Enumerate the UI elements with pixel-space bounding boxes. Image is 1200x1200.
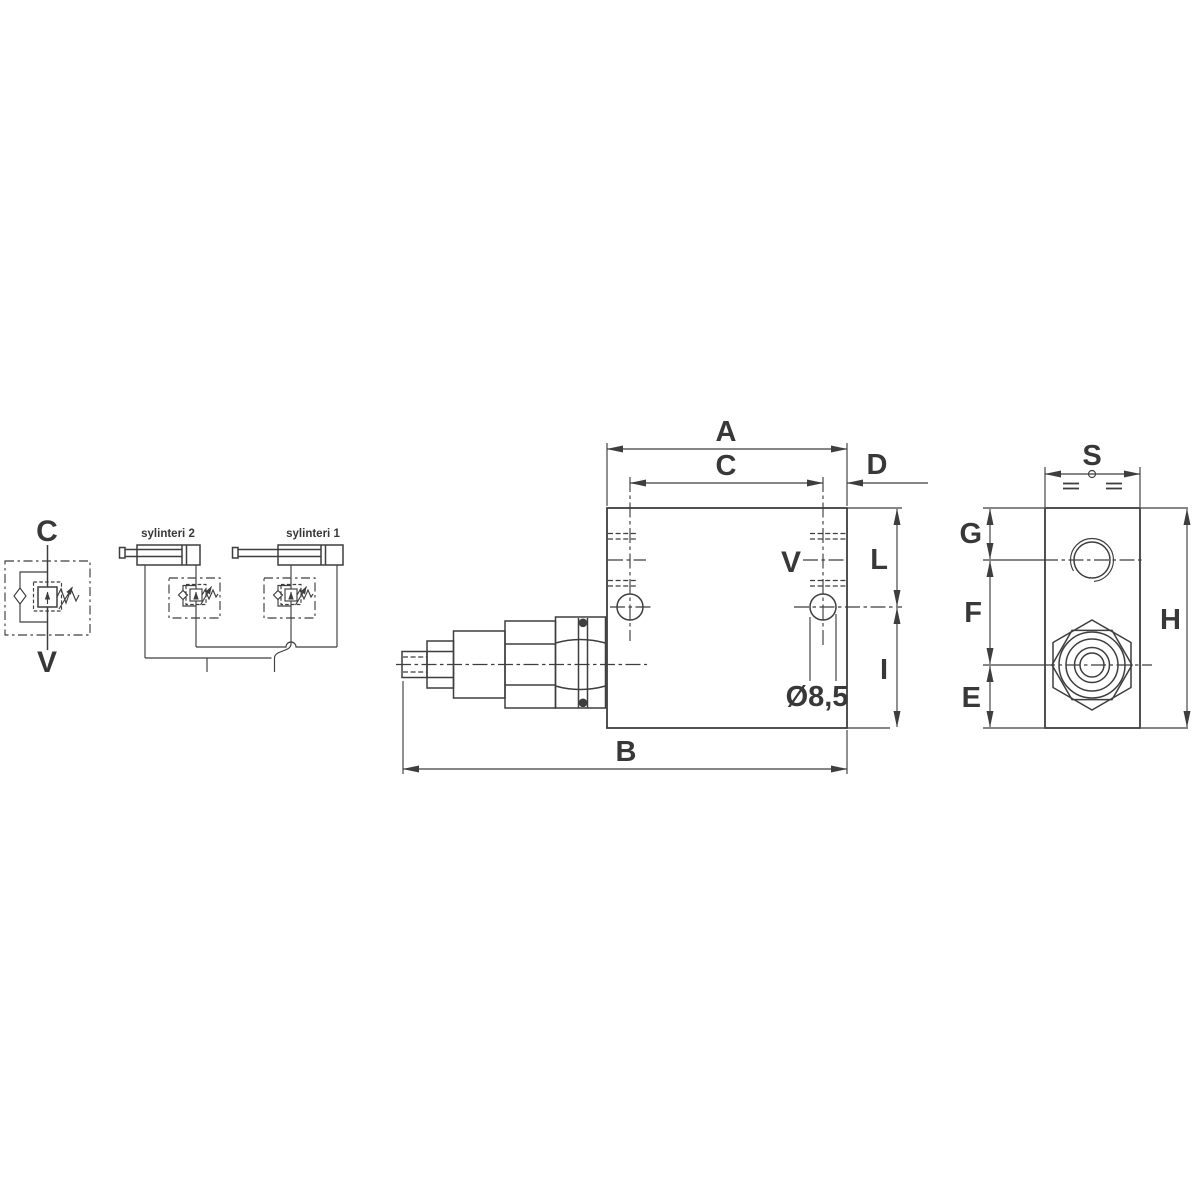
- side-view-port-v-label: V: [781, 546, 801, 579]
- dimension-i: I: [880, 608, 897, 727]
- dimension-s: S: [1045, 440, 1140, 507]
- dim-label-s: S: [1082, 440, 1101, 472]
- symbol-port-c-label: C: [36, 515, 58, 548]
- dim-label-d: D: [867, 449, 888, 481]
- dimension-d: D: [847, 449, 928, 483]
- dimension-e: E: [962, 666, 990, 727]
- cylinder-2-label: sylinteri 2: [141, 528, 195, 540]
- technical-drawing-canvas: C V sylinteri 2 sylinteri 1: [0, 0, 1200, 1200]
- hidden-port-v: [803, 534, 846, 587]
- cylinder-1: [233, 545, 344, 565]
- dim-label-a: A: [716, 416, 737, 448]
- cylinder-2: [120, 545, 201, 565]
- dim-label-i: I: [880, 654, 888, 686]
- dim-label-l: L: [870, 544, 888, 576]
- equal-spacing-marks: [1063, 484, 1122, 489]
- end-view-outline: [1045, 508, 1140, 728]
- dim-label-e: E: [962, 682, 981, 714]
- application-circuit: sylinteri 2 sylinteri 1: [120, 528, 344, 672]
- dimension-g: G: [959, 509, 990, 559]
- cylinder-1-label: sylinteri 1: [286, 528, 340, 540]
- mini-valve-1: [264, 578, 315, 618]
- spring-symbol: [57, 589, 79, 603]
- mini-valve-2: [169, 578, 220, 618]
- dim-label-g: G: [959, 518, 982, 550]
- dimension-l: L: [870, 509, 897, 606]
- hole-diameter-callout: Ø8,5: [786, 614, 849, 713]
- cartridge-profile: [396, 617, 647, 708]
- dim-label-f: F: [964, 597, 982, 629]
- hole-diameter-label: Ø8,5: [786, 681, 849, 713]
- check-valve-symbol: [14, 588, 26, 604]
- symbol-port-v-label: V: [37, 646, 57, 679]
- dimension-c: C: [630, 450, 823, 483]
- dimension-f: F: [964, 561, 990, 664]
- dim-label-b: B: [616, 736, 637, 768]
- valve-side-view: V A: [396, 416, 928, 774]
- dim-label-h: H: [1160, 604, 1181, 636]
- dim-label-c: C: [716, 450, 737, 482]
- relief-valve-symbol: C V: [5, 515, 90, 679]
- valve-end-view: S G F E H: [959, 440, 1188, 728]
- o-ring-top: [579, 619, 588, 628]
- o-ring-bottom: [579, 699, 588, 708]
- hidden-port-left: [608, 534, 646, 587]
- dimension-h: H: [1160, 509, 1187, 727]
